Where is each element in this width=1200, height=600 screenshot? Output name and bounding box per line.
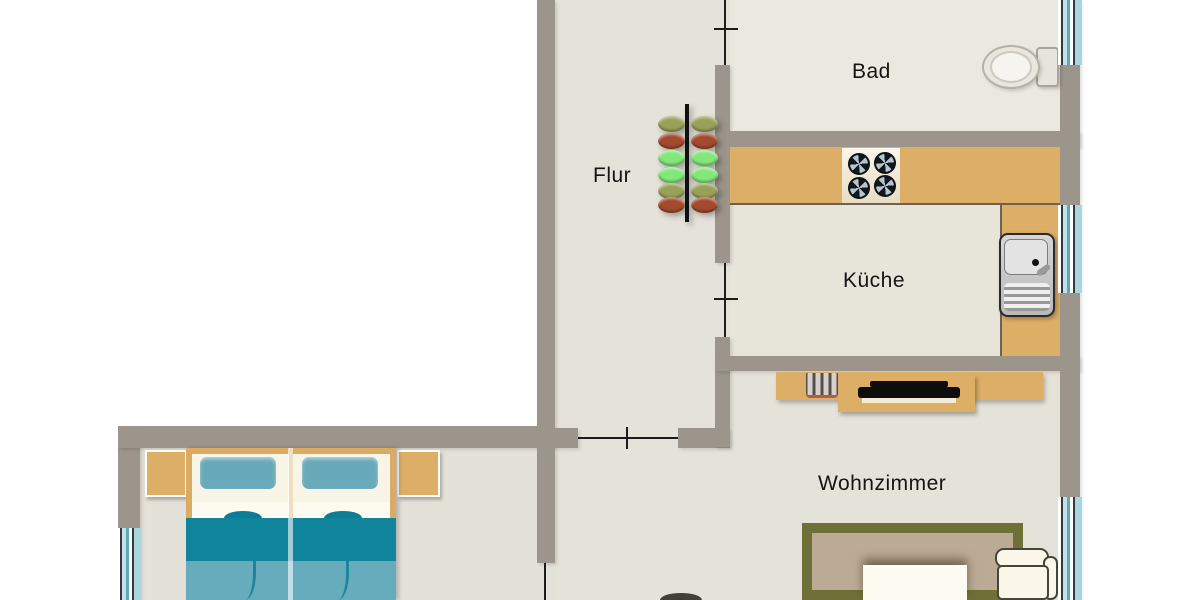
pillow-right xyxy=(302,457,378,489)
sink-drain xyxy=(1032,259,1039,266)
pillow-left xyxy=(200,457,276,489)
door-line-bad xyxy=(724,0,726,65)
sofa-icon xyxy=(997,565,1049,600)
window-icon-bad xyxy=(1058,0,1082,65)
coat-hook xyxy=(691,167,718,183)
stove-burner xyxy=(874,175,896,197)
wall-kueche-south xyxy=(715,356,1080,371)
window-icon-wohnzimmer xyxy=(1058,497,1082,600)
room-label-bad: Bad xyxy=(852,60,891,84)
door-tick-wohnzimmer xyxy=(626,427,628,449)
wall-doorway-stub-left xyxy=(555,428,578,448)
nightstand-left xyxy=(145,450,187,497)
tv-screen xyxy=(858,387,960,398)
stove-burner xyxy=(874,152,896,174)
coat-hook xyxy=(658,133,685,149)
coat-hook xyxy=(691,116,718,132)
coat-hook xyxy=(691,197,718,213)
room-label-flur: Flur xyxy=(593,164,631,188)
door-line-kueche xyxy=(724,263,726,337)
radiator-icon xyxy=(806,373,838,398)
wall-bedroom-top xyxy=(118,426,555,448)
wall-flur-west xyxy=(537,0,555,563)
window-icon-bedroom xyxy=(117,528,141,600)
coat-hook xyxy=(658,116,685,132)
toilet-bowl-inner xyxy=(990,51,1032,83)
coat-rack-icon xyxy=(656,104,720,226)
stove-burner xyxy=(848,153,870,175)
coat-hook xyxy=(658,167,685,183)
coffee-table xyxy=(863,565,967,600)
door-line-schlafzimmer xyxy=(544,563,546,600)
nightstand-right xyxy=(397,450,440,497)
tv-stand xyxy=(862,398,956,403)
double-bed-icon xyxy=(186,448,396,600)
wall-bad-kueche xyxy=(730,131,1080,147)
coat-rack-pole xyxy=(685,104,689,222)
wall-flur-east-lower xyxy=(715,337,730,447)
sink-drainer xyxy=(1004,283,1050,311)
door-tick-kueche xyxy=(714,298,738,300)
coat-hook xyxy=(691,150,718,166)
door-tick-bad xyxy=(714,28,738,30)
window-icon-kueche xyxy=(1058,205,1082,293)
room-label-wohnzimmer: Wohnzimmer xyxy=(818,472,946,496)
plant-icon xyxy=(660,593,702,600)
bed-divider xyxy=(288,448,293,600)
coat-hook xyxy=(658,197,685,213)
door-line-wohnzimmer xyxy=(578,437,678,439)
stove-burner xyxy=(848,177,870,199)
room-label-kueche: Küche xyxy=(843,269,905,293)
coat-hook xyxy=(691,133,718,149)
coat-hook xyxy=(658,150,685,166)
flur-floor xyxy=(555,0,730,600)
floor-plan: Flur Bad Küche Wohnzimmer xyxy=(0,0,1200,600)
